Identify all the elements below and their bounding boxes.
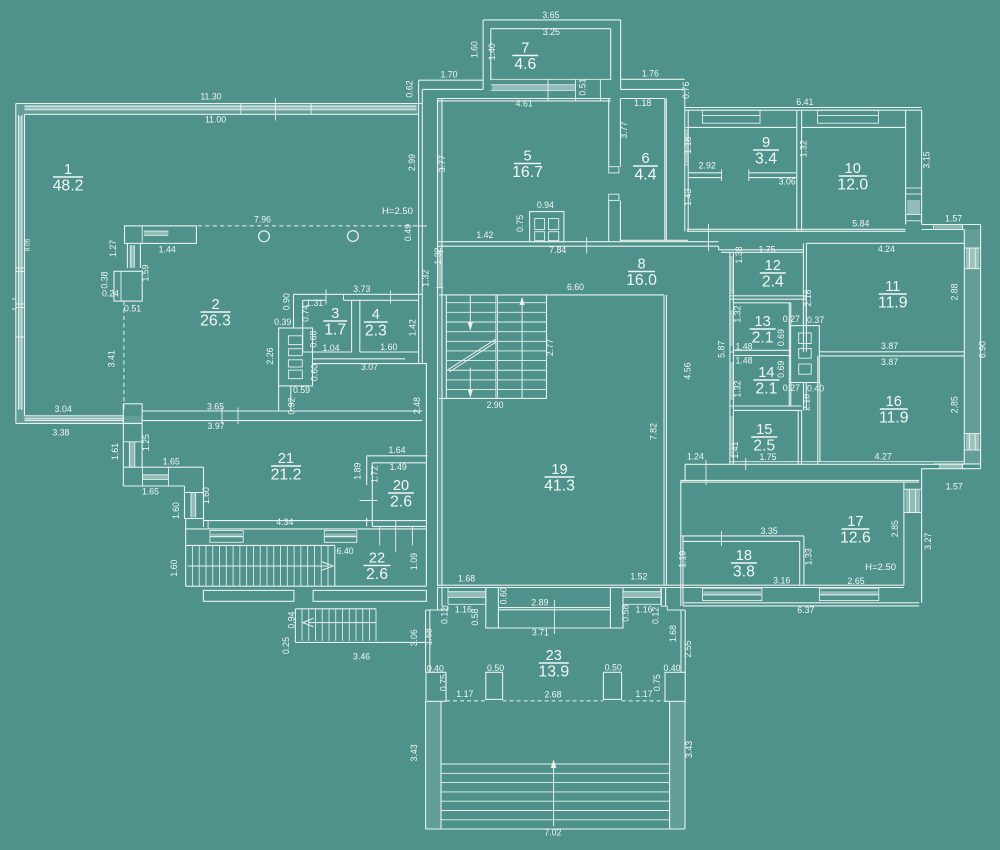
- svg-text:6: 6: [641, 151, 649, 167]
- svg-text:3.77: 3.77: [437, 155, 447, 172]
- svg-text:3: 3: [331, 306, 339, 322]
- svg-text:1.68: 1.68: [668, 625, 678, 642]
- svg-text:16.0: 16.0: [626, 272, 657, 289]
- svg-text:0.38: 0.38: [100, 271, 110, 288]
- svg-text:0.49: 0.49: [403, 224, 413, 241]
- svg-text:2.1: 2.1: [752, 330, 774, 347]
- svg-text:1.68: 1.68: [458, 574, 475, 584]
- svg-text:1.57: 1.57: [946, 482, 963, 492]
- svg-text:1.76: 1.76: [642, 68, 659, 78]
- svg-text:0.27: 0.27: [783, 383, 800, 393]
- svg-text:6.90: 6.90: [978, 341, 988, 358]
- svg-text:0.51: 0.51: [124, 304, 141, 314]
- svg-text:10: 10: [845, 161, 861, 177]
- svg-text:1.49: 1.49: [390, 462, 407, 472]
- svg-text:1.65: 1.65: [142, 487, 159, 497]
- svg-text:17: 17: [847, 514, 863, 530]
- svg-text:1.64: 1.64: [388, 445, 405, 455]
- svg-text:6.41: 6.41: [796, 97, 813, 107]
- svg-text:0.12: 0.12: [439, 607, 449, 624]
- svg-text:1.60: 1.60: [380, 342, 397, 352]
- svg-text:4.61: 4.61: [516, 99, 533, 109]
- svg-text:26.3: 26.3: [200, 313, 231, 330]
- svg-text:3.65: 3.65: [207, 402, 224, 412]
- svg-text:11.30: 11.30: [200, 92, 221, 102]
- svg-text:1.17: 1.17: [635, 689, 652, 699]
- svg-text:2.68: 2.68: [544, 690, 561, 700]
- svg-text:2.1: 2.1: [755, 381, 777, 398]
- svg-text:11.9: 11.9: [879, 410, 909, 427]
- svg-text:5: 5: [523, 148, 531, 164]
- svg-text:1.61: 1.61: [110, 443, 120, 460]
- svg-text:2: 2: [211, 297, 219, 313]
- svg-text:4.4: 4.4: [635, 167, 657, 184]
- svg-text:1.60: 1.60: [470, 41, 480, 58]
- svg-text:1.48: 1.48: [735, 342, 752, 352]
- svg-text:1.60: 1.60: [201, 487, 211, 504]
- svg-text:3.04: 3.04: [55, 404, 72, 414]
- svg-text:3.07: 3.07: [361, 362, 378, 372]
- svg-text:7.84: 7.84: [549, 245, 566, 255]
- svg-text:1.24: 1.24: [687, 451, 704, 461]
- svg-text:4: 4: [372, 307, 380, 323]
- svg-text:3.38: 3.38: [52, 427, 69, 437]
- svg-text:2.4: 2.4: [762, 274, 784, 291]
- svg-text:0.25: 0.25: [281, 637, 291, 654]
- svg-text:1.43: 1.43: [683, 189, 693, 206]
- svg-text:7.82: 7.82: [649, 423, 659, 440]
- svg-text:0.50: 0.50: [487, 663, 504, 673]
- svg-text:0.62: 0.62: [405, 80, 415, 97]
- svg-text:4.24: 4.24: [878, 244, 895, 254]
- svg-text:0.12: 0.12: [651, 607, 661, 624]
- svg-text:11: 11: [885, 279, 900, 295]
- svg-text:3.16: 3.16: [773, 575, 790, 585]
- svg-text:12.0: 12.0: [837, 177, 868, 194]
- svg-text:3.46: 3.46: [353, 651, 370, 661]
- svg-text:3.06: 3.06: [409, 629, 419, 646]
- svg-text:2.89: 2.89: [531, 597, 548, 607]
- svg-text:3.77: 3.77: [619, 121, 629, 138]
- svg-text:0.58: 0.58: [470, 608, 480, 625]
- svg-text:5.87: 5.87: [717, 341, 727, 358]
- svg-text:4.56: 4.56: [683, 362, 693, 379]
- svg-text:3.97: 3.97: [208, 421, 225, 431]
- svg-text:0.69: 0.69: [776, 361, 786, 378]
- svg-text:2.99: 2.99: [407, 154, 417, 171]
- svg-text:0.76: 0.76: [681, 82, 691, 99]
- svg-text:19: 19: [551, 462, 567, 478]
- svg-text:1.32: 1.32: [733, 305, 743, 322]
- svg-text:0.40: 0.40: [427, 664, 444, 674]
- svg-text:1.42: 1.42: [476, 230, 493, 240]
- svg-text:1.04: 1.04: [322, 343, 339, 353]
- svg-text:1.19: 1.19: [678, 551, 688, 568]
- svg-text:2.6: 2.6: [366, 566, 388, 583]
- svg-text:12: 12: [765, 258, 781, 274]
- svg-text:3.35: 3.35: [761, 526, 778, 536]
- svg-text:14: 14: [758, 365, 774, 381]
- svg-text:0.94: 0.94: [286, 611, 296, 628]
- svg-text:0.90: 0.90: [282, 293, 292, 310]
- svg-text:0.74: 0.74: [300, 305, 310, 322]
- svg-text:0.58: 0.58: [621, 605, 631, 622]
- svg-text:1.7: 1.7: [324, 322, 346, 339]
- svg-text:22: 22: [369, 550, 385, 566]
- svg-text:2.92: 2.92: [699, 160, 716, 170]
- svg-text:1.75: 1.75: [758, 245, 775, 255]
- svg-text:2.48: 2.48: [412, 397, 422, 414]
- svg-text:3.43: 3.43: [409, 744, 419, 761]
- svg-text:6.37: 6.37: [797, 605, 814, 615]
- svg-text:3.4: 3.4: [755, 151, 777, 168]
- svg-text:2.3: 2.3: [365, 323, 387, 340]
- svg-text:1.42: 1.42: [408, 319, 418, 336]
- svg-text:1.09: 1.09: [409, 553, 419, 570]
- svg-text:1.18: 1.18: [683, 137, 693, 154]
- svg-text:1.59: 1.59: [140, 264, 150, 281]
- svg-text:0.69: 0.69: [776, 329, 786, 346]
- svg-text:2.18: 2.18: [802, 394, 812, 411]
- svg-text:3.15: 3.15: [922, 151, 932, 168]
- svg-text:3.8: 3.8: [733, 564, 755, 581]
- svg-text:9: 9: [762, 135, 770, 151]
- svg-text:1.52: 1.52: [630, 572, 647, 582]
- svg-text:3.43: 3.43: [684, 741, 694, 758]
- svg-text:2.85: 2.85: [890, 520, 900, 537]
- svg-text:2.6: 2.6: [390, 494, 412, 511]
- svg-text:H=2.50: H=2.50: [865, 562, 896, 573]
- svg-text:3.87: 3.87: [881, 357, 898, 367]
- svg-text:0.59: 0.59: [293, 385, 310, 395]
- svg-text:1.65: 1.65: [163, 457, 180, 467]
- svg-text:1.68: 1.68: [423, 628, 433, 645]
- svg-text:13.9: 13.9: [538, 664, 569, 681]
- svg-text:1: 1: [64, 162, 72, 178]
- svg-text:1.72: 1.72: [370, 466, 380, 483]
- svg-text:1.33: 1.33: [804, 548, 814, 565]
- svg-text:6.60: 6.60: [567, 282, 584, 292]
- svg-text:1.32: 1.32: [433, 247, 443, 264]
- svg-text:1.32: 1.32: [733, 380, 743, 397]
- svg-text:0.40: 0.40: [663, 663, 680, 673]
- svg-text:3.27: 3.27: [923, 533, 933, 550]
- svg-text:1.32: 1.32: [798, 140, 808, 157]
- svg-text:3.87: 3.87: [881, 341, 898, 351]
- svg-text:11.9: 11.9: [878, 295, 908, 312]
- svg-text:0.75: 0.75: [439, 674, 449, 691]
- svg-text:23: 23: [546, 648, 562, 664]
- svg-text:1.18: 1.18: [634, 98, 651, 108]
- svg-text:1.17: 1.17: [456, 689, 473, 699]
- svg-text:3.25: 3.25: [543, 27, 560, 37]
- svg-text:20: 20: [393, 478, 409, 494]
- svg-text:21: 21: [278, 451, 294, 467]
- svg-text:7: 7: [521, 40, 529, 56]
- svg-text:1.60: 1.60: [169, 560, 179, 577]
- svg-text:0.60: 0.60: [309, 364, 319, 381]
- svg-text:2.16: 2.16: [803, 289, 813, 306]
- svg-text:0.24: 0.24: [102, 289, 119, 299]
- svg-text:0.51: 0.51: [577, 78, 587, 95]
- svg-text:48.2: 48.2: [53, 178, 84, 195]
- svg-text:2.55: 2.55: [683, 640, 693, 657]
- svg-text:1.41: 1.41: [730, 441, 740, 458]
- svg-text:2.88: 2.88: [950, 283, 960, 300]
- svg-text:15: 15: [756, 422, 772, 438]
- svg-text:0.60: 0.60: [499, 587, 509, 604]
- svg-text:3.65: 3.65: [542, 10, 559, 20]
- svg-text:4.27: 4.27: [875, 451, 892, 461]
- svg-text:21.2: 21.2: [271, 467, 302, 484]
- svg-text:0.50: 0.50: [605, 663, 622, 673]
- svg-text:1.32: 1.32: [420, 270, 430, 287]
- svg-text:0.40: 0.40: [807, 383, 824, 393]
- svg-text:0.68: 0.68: [308, 330, 318, 347]
- svg-text:0.92: 0.92: [286, 397, 296, 414]
- svg-text:1.60: 1.60: [171, 502, 181, 519]
- svg-text:1.48: 1.48: [735, 356, 752, 366]
- svg-text:11.00: 11.00: [205, 115, 226, 125]
- svg-text:1.57: 1.57: [945, 214, 962, 224]
- svg-text:0.94: 0.94: [537, 200, 554, 210]
- svg-text:0.75: 0.75: [515, 215, 525, 232]
- svg-text:H=2.50: H=2.50: [382, 206, 413, 217]
- svg-text:16.7: 16.7: [512, 164, 543, 181]
- svg-text:7.96: 7.96: [254, 215, 271, 225]
- svg-text:4.34: 4.34: [276, 517, 293, 527]
- svg-text:2.26: 2.26: [265, 347, 275, 364]
- svg-text:2.77: 2.77: [545, 339, 555, 356]
- svg-text:0.27: 0.27: [783, 314, 800, 324]
- svg-text:1.25: 1.25: [141, 434, 151, 451]
- svg-text:13: 13: [754, 314, 770, 330]
- svg-text:1.75: 1.75: [759, 452, 776, 462]
- svg-text:4.6: 4.6: [514, 56, 536, 73]
- svg-text:1.89: 1.89: [353, 463, 363, 480]
- svg-text:12.6: 12.6: [840, 530, 871, 547]
- svg-text:1.40: 1.40: [487, 43, 497, 60]
- svg-text:2.65: 2.65: [848, 576, 865, 586]
- svg-text:2.90: 2.90: [486, 400, 503, 410]
- svg-text:0.37: 0.37: [807, 315, 824, 325]
- svg-text:6.40: 6.40: [337, 546, 354, 556]
- svg-text:1.27: 1.27: [108, 240, 118, 257]
- svg-text:0.75: 0.75: [652, 674, 662, 691]
- svg-text:3.06: 3.06: [779, 176, 796, 186]
- svg-text:5.84: 5.84: [852, 219, 869, 229]
- svg-text:16: 16: [886, 394, 902, 410]
- svg-text:8: 8: [637, 256, 645, 272]
- svg-text:3.41: 3.41: [107, 350, 117, 367]
- svg-text:1.70: 1.70: [440, 70, 457, 80]
- svg-text:2.85: 2.85: [950, 396, 960, 413]
- svg-text:0.39: 0.39: [274, 317, 291, 327]
- svg-text:18: 18: [736, 548, 752, 564]
- svg-text:41.3: 41.3: [544, 478, 575, 495]
- svg-text:7.02: 7.02: [544, 828, 561, 838]
- svg-text:3.71: 3.71: [532, 627, 549, 637]
- svg-text:1.44: 1.44: [159, 245, 176, 255]
- svg-text:1.38: 1.38: [734, 246, 744, 263]
- svg-text:8.05: 8.05: [25, 238, 32, 251]
- svg-text:3.73: 3.73: [353, 284, 370, 294]
